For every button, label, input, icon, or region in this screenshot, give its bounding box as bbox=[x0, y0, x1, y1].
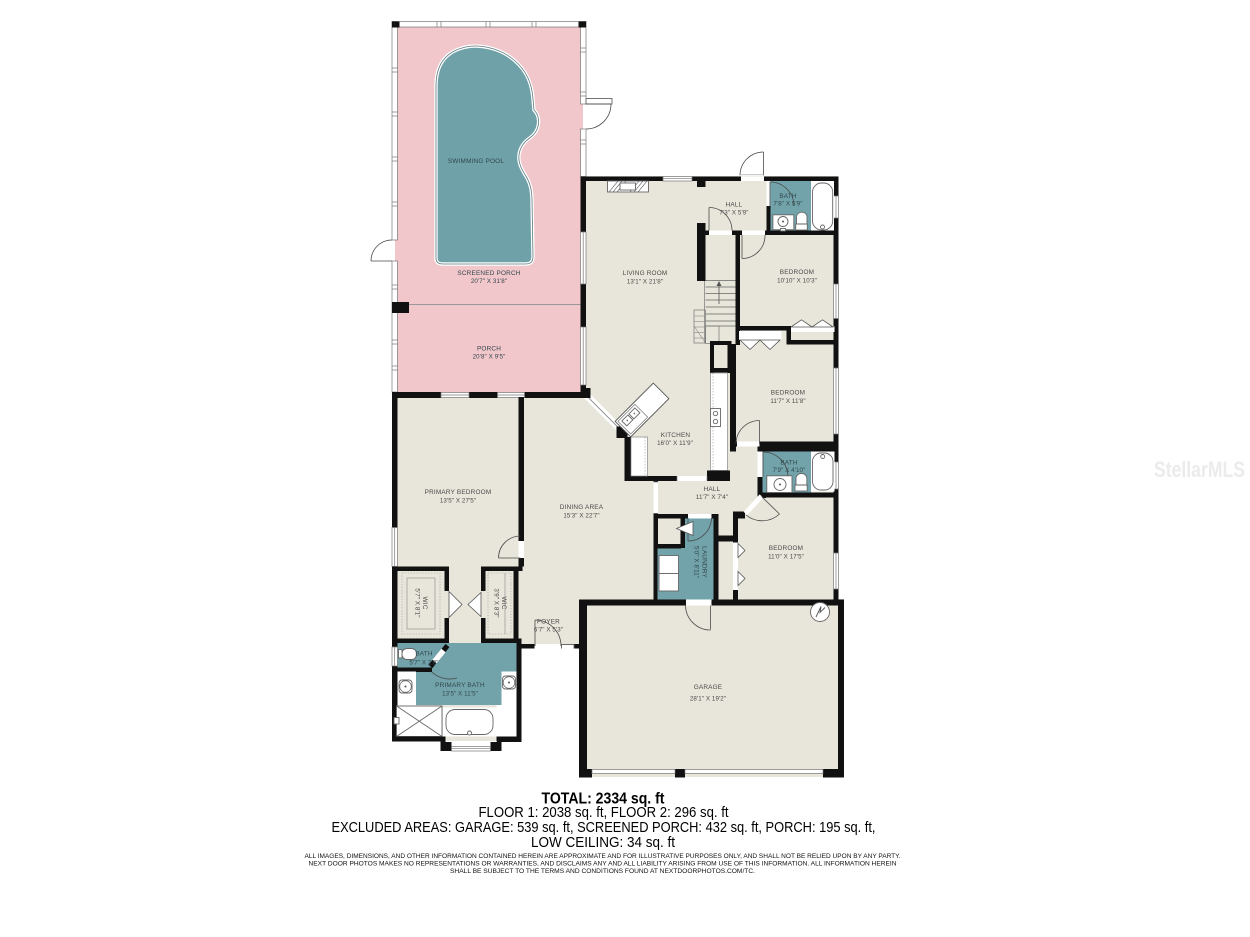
svg-text:BATH: BATH bbox=[415, 651, 433, 658]
svg-text:13'5" X 27'5": 13'5" X 27'5" bbox=[440, 498, 476, 505]
svg-text:GARAGE: GARAGE bbox=[694, 684, 723, 691]
svg-text:11'7" X 11'8": 11'7" X 11'8" bbox=[770, 398, 805, 405]
svg-text:BEDROOM: BEDROOM bbox=[769, 545, 803, 552]
svg-text:StellarMLS: StellarMLS bbox=[1154, 457, 1245, 482]
svg-text:16'0" X 11'9": 16'0" X 11'9" bbox=[657, 440, 693, 447]
svg-text:13'1" X 21'8": 13'1" X 21'8" bbox=[627, 279, 663, 286]
svg-text:WIC: WIC bbox=[500, 596, 507, 609]
svg-text:LAUNDRY: LAUNDRY bbox=[701, 546, 708, 578]
svg-text:PRIMARY BATH: PRIMARY BATH bbox=[435, 682, 485, 689]
svg-text:3'9" X 8'3": 3'9" X 8'3" bbox=[493, 588, 500, 617]
svg-text:20'8" X 9'5": 20'8" X 9'5" bbox=[473, 354, 506, 361]
svg-text:28'1" X 19'2": 28'1" X 19'2" bbox=[690, 696, 726, 703]
svg-text:BEDROOM: BEDROOM bbox=[771, 390, 805, 397]
svg-text:HALL: HALL bbox=[726, 202, 743, 209]
svg-text:LOW CEILING: 34 sq. ft: LOW CEILING: 34 sq. ft bbox=[531, 834, 676, 851]
svg-text:LIVING ROOM: LIVING ROOM bbox=[623, 270, 668, 277]
svg-text:BATH: BATH bbox=[780, 460, 798, 467]
svg-text:6'7" X 5'3": 6'7" X 5'3" bbox=[534, 627, 563, 634]
svg-text:WIC: WIC bbox=[421, 596, 428, 609]
svg-text:NEXT DOOR PHOTOS MAKES NO REPR: NEXT DOOR PHOTOS MAKES NO REPRESENTATION… bbox=[309, 861, 897, 868]
svg-text:20'7" X 31'8": 20'7" X 31'8" bbox=[471, 278, 507, 285]
svg-text:PRIMARY BEDROOM: PRIMARY BEDROOM bbox=[425, 489, 492, 496]
svg-text:FOYER: FOYER bbox=[537, 619, 560, 626]
svg-text:SHALL BE SUBJECT TO THE TERMS: SHALL BE SUBJECT TO THE TERMS AND CONDIT… bbox=[450, 868, 755, 875]
svg-text:HALL: HALL bbox=[704, 486, 721, 493]
svg-text:7'9" X 4'10": 7'9" X 4'10" bbox=[773, 467, 806, 474]
svg-text:ALL IMAGES, DIMENSIONS, AND OT: ALL IMAGES, DIMENSIONS, AND OTHER INFORM… bbox=[305, 853, 901, 860]
svg-text:11'7" X 7'4": 11'7" X 7'4" bbox=[696, 494, 728, 501]
svg-text:5'7" X 2'8": 5'7" X 2'8" bbox=[409, 660, 438, 667]
svg-text:7'8" X 5'9": 7'8" X 5'9" bbox=[773, 201, 802, 208]
svg-text:5'0" X 8'11": 5'0" X 8'11" bbox=[693, 546, 700, 578]
svg-text:SWIMMING POOL: SWIMMING POOL bbox=[448, 158, 504, 165]
svg-text:13'5" X 11'5": 13'5" X 11'5" bbox=[442, 691, 478, 698]
svg-text:BATH: BATH bbox=[779, 193, 797, 200]
svg-text:11'0" X 17'5": 11'0" X 17'5" bbox=[768, 554, 804, 561]
svg-text:7'3" X 5'9": 7'3" X 5'9" bbox=[719, 210, 748, 217]
svg-text:KITCHEN: KITCHEN bbox=[661, 432, 691, 439]
svg-text:5'7" X 8'1": 5'7" X 8'1" bbox=[414, 588, 421, 617]
svg-text:SCREENED PORCH: SCREENED PORCH bbox=[457, 270, 520, 277]
svg-text:DINING AREA: DINING AREA bbox=[560, 504, 604, 511]
svg-text:PORCH: PORCH bbox=[477, 346, 501, 353]
svg-text:10'10" X 10'3": 10'10" X 10'3" bbox=[777, 278, 817, 285]
svg-text:BEDROOM: BEDROOM bbox=[780, 269, 814, 276]
svg-text:15'3" X 22'7": 15'3" X 22'7" bbox=[563, 513, 599, 520]
